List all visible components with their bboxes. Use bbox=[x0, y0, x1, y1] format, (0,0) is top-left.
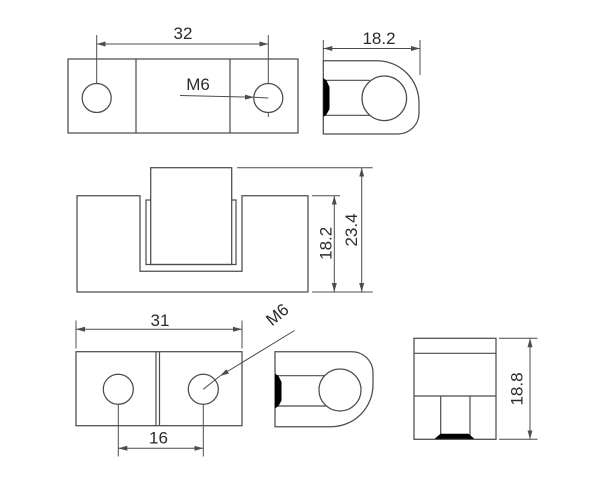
view-bottom-side bbox=[275, 352, 373, 427]
dimension-label-182-top: 18.2 bbox=[362, 29, 395, 48]
hole-left-lower bbox=[103, 374, 133, 404]
view-bottom-section: 18.8 bbox=[414, 338, 538, 439]
thread-label-m6-bottom: M6 bbox=[262, 300, 292, 330]
drawing-sheet: 32 M6 18.2 18.2 23.4 31 bbox=[0, 0, 600, 487]
pivot-barrel-upper bbox=[362, 76, 407, 121]
view-bottom-plan: 31 16 M6 bbox=[76, 300, 295, 457]
view-front-assembled: 18.2 23.4 bbox=[77, 168, 373, 292]
leader-tail-m6-top bbox=[254, 97, 268, 98]
upper-tongue-outline bbox=[151, 168, 232, 265]
hole-left bbox=[82, 84, 111, 113]
view-top-side: 18.2 bbox=[323, 29, 420, 134]
section-fill-end bbox=[435, 434, 475, 439]
dimension-label-188: 18.8 bbox=[508, 372, 527, 405]
dimension-label-234: 23.4 bbox=[342, 213, 361, 246]
view-top-plan: 32 M6 bbox=[68, 24, 298, 133]
dimension-label-31: 31 bbox=[151, 311, 170, 330]
dimension-label-16: 16 bbox=[149, 429, 168, 448]
pivot-barrel-lower bbox=[319, 369, 361, 411]
dimension-label-182-front: 18.2 bbox=[317, 227, 336, 260]
thread-label-m6-top: M6 bbox=[186, 75, 210, 94]
technical-drawing-canvas: 32 M6 18.2 18.2 23.4 31 bbox=[0, 0, 600, 487]
dimension-label-32: 32 bbox=[174, 24, 193, 43]
